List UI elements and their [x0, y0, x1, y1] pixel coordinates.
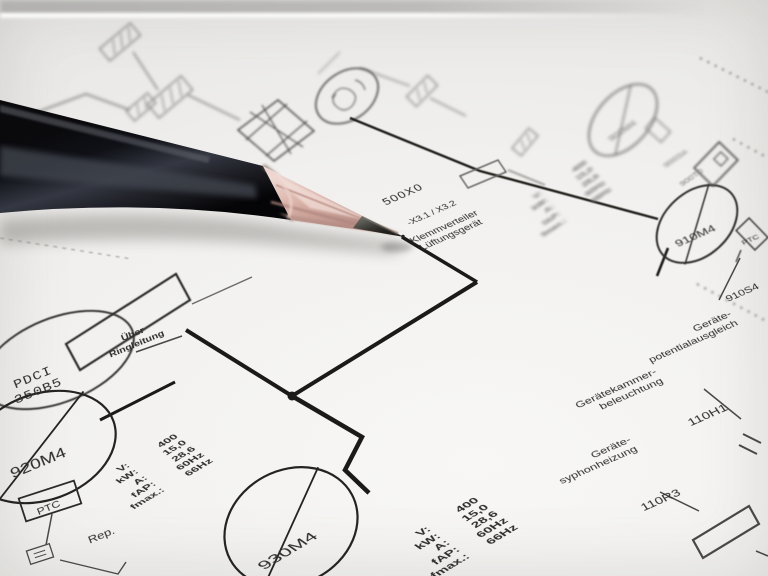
- pencil-layer: [0, 0, 768, 576]
- pencil-tip-point: [401, 235, 405, 239]
- photo-of-schematic-with-pencil: 500X0 -X3.1 / X3.2 Klemmverteiler Lüftun…: [0, 0, 768, 576]
